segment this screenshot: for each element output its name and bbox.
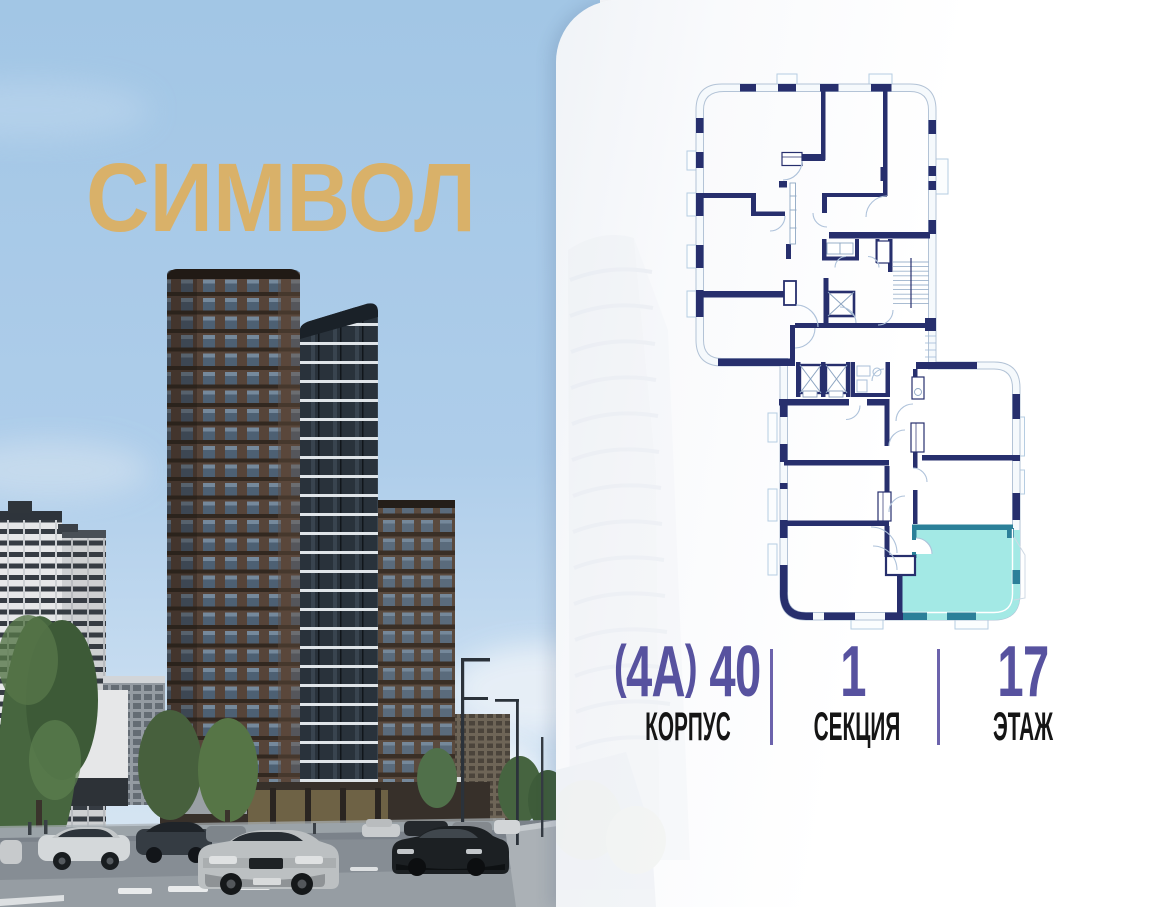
svg-text:СИМВОЛ: СИМВОЛ [86, 143, 476, 252]
